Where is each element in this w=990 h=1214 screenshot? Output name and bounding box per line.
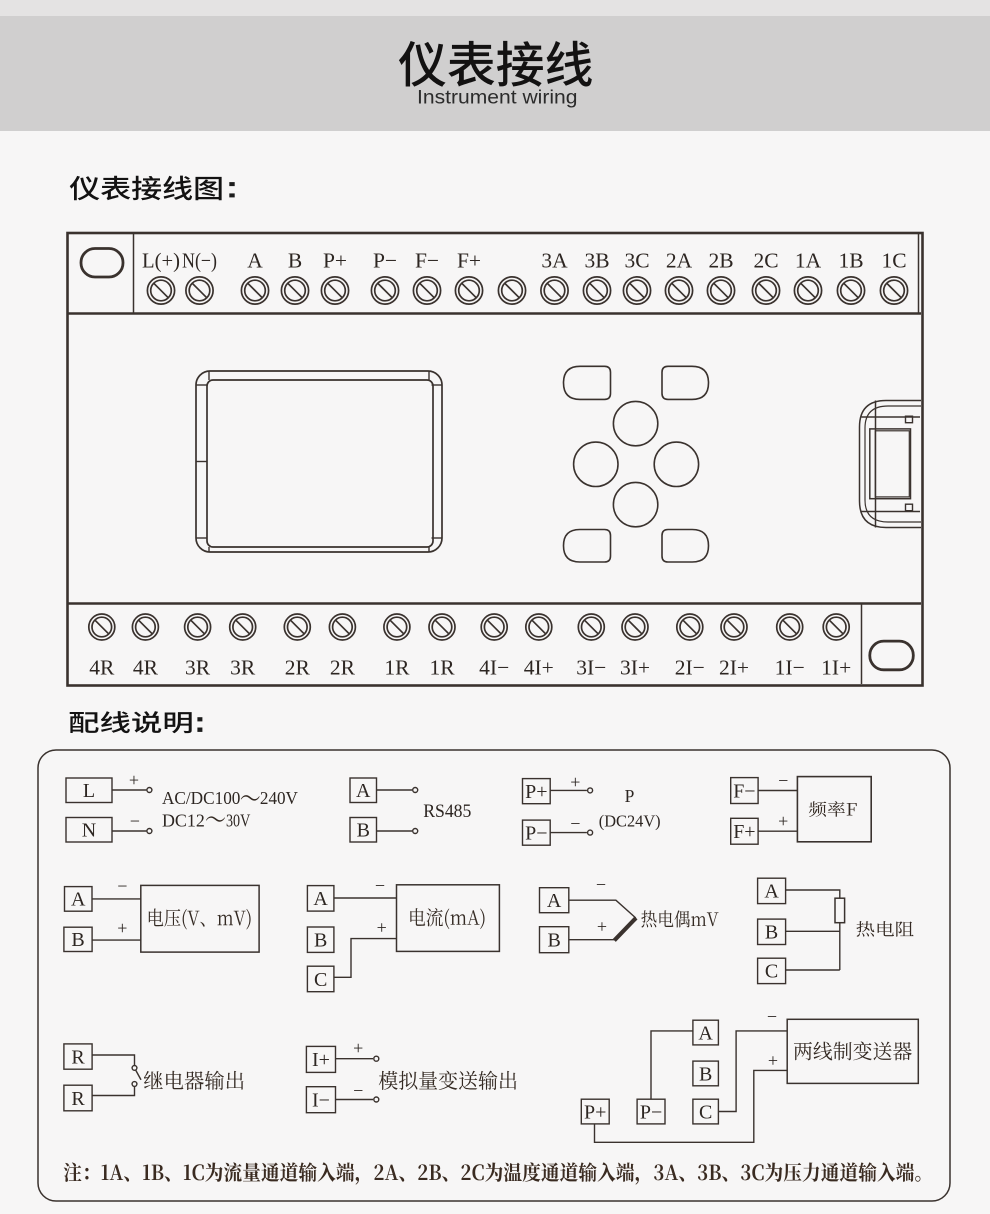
svg-text:N(−): N(−) [182, 249, 217, 273]
svg-text:A: A [247, 249, 263, 273]
svg-text:P+: P+ [584, 1101, 606, 1123]
svg-text:+: + [117, 918, 127, 938]
svg-text:P−: P− [373, 249, 397, 273]
svg-text:3A: 3A [541, 249, 568, 273]
svg-text:1I+: 1I+ [821, 656, 851, 680]
svg-text:4I−: 4I− [479, 656, 509, 680]
svg-text:B: B [288, 249, 302, 273]
svg-text:A: A [547, 890, 562, 912]
svg-text:B: B [699, 1063, 712, 1085]
svg-text:4I+: 4I+ [524, 656, 554, 680]
svg-text:C: C [699, 1101, 712, 1123]
svg-text:−: − [375, 876, 385, 896]
svg-text:P−: P− [525, 822, 547, 844]
svg-text:3B: 3B [584, 249, 609, 273]
svg-text:+: + [377, 918, 387, 938]
svg-text:2C: 2C [753, 249, 778, 273]
svg-text:C: C [765, 961, 778, 983]
svg-text:I−: I− [312, 1090, 330, 1112]
svg-text:+: + [768, 1050, 778, 1070]
svg-text:Instrument wiring: Instrument wiring [417, 86, 578, 108]
svg-text:−: − [117, 876, 127, 896]
svg-text:2A: 2A [666, 249, 693, 273]
svg-text:2R: 2R [330, 656, 356, 680]
svg-text:1R: 1R [384, 656, 410, 680]
svg-text:B: B [765, 922, 778, 944]
svg-text:2B: 2B [708, 249, 733, 273]
svg-text:240V: 240V [260, 788, 298, 808]
svg-text:I+: I+ [312, 1049, 330, 1071]
svg-text:+: + [597, 917, 607, 937]
svg-text:2R: 2R [285, 656, 311, 680]
svg-text:+: + [129, 770, 139, 790]
svg-text:1C: 1C [881, 249, 906, 273]
svg-text:A: A [764, 881, 779, 903]
svg-text:R: R [71, 1088, 85, 1110]
svg-text:B: B [314, 930, 327, 952]
svg-text:F+: F+ [457, 249, 481, 273]
svg-text:DC12: DC12 [162, 811, 205, 831]
svg-text:P: P [625, 786, 635, 806]
svg-text:AC/DC100: AC/DC100 [162, 788, 240, 808]
svg-text:A: A [313, 888, 328, 910]
svg-text:4R: 4R [89, 656, 115, 680]
svg-text:3I−: 3I− [576, 656, 606, 680]
svg-text:1A: 1A [795, 249, 822, 273]
svg-text:A: A [71, 889, 86, 911]
svg-text:A: A [698, 1022, 713, 1044]
svg-text:P+: P+ [323, 249, 347, 273]
svg-text:1I−: 1I− [775, 656, 805, 680]
svg-text:B: B [547, 930, 560, 952]
svg-text:F−: F− [415, 249, 439, 273]
svg-text:−: − [353, 1080, 363, 1100]
svg-text:N: N [82, 820, 96, 842]
svg-text:RS485: RS485 [423, 802, 471, 822]
svg-text:C: C [314, 969, 327, 991]
svg-text:3R: 3R [230, 656, 256, 680]
svg-text:R: R [71, 1046, 85, 1068]
svg-text:B: B [71, 929, 84, 951]
svg-text:A: A [356, 780, 371, 802]
svg-text:2I−: 2I− [675, 656, 705, 680]
svg-text:F+: F+ [733, 821, 755, 843]
svg-text:+: + [570, 772, 580, 792]
svg-text:P−: P− [640, 1101, 662, 1123]
svg-text:4R: 4R [133, 656, 159, 680]
svg-text:3I+: 3I+ [620, 656, 650, 680]
svg-text:1B: 1B [838, 249, 863, 273]
svg-text:−: − [596, 875, 606, 895]
svg-text:2I+: 2I+ [719, 656, 749, 680]
svg-text:3C: 3C [624, 249, 649, 273]
svg-text:−: − [570, 813, 580, 833]
svg-text:+: + [353, 1038, 363, 1058]
svg-text:P+: P+ [525, 781, 547, 803]
svg-text:30V: 30V [226, 811, 250, 831]
svg-text:+: + [778, 811, 788, 831]
svg-text:F−: F− [733, 780, 755, 802]
svg-text:L(+): L(+) [142, 249, 180, 273]
svg-text:−: − [130, 811, 140, 831]
svg-text:−: − [778, 771, 788, 791]
svg-text:1R: 1R [429, 656, 455, 680]
svg-text:−: − [767, 1006, 777, 1026]
svg-text:L: L [83, 780, 95, 802]
svg-text:B: B [357, 820, 370, 842]
svg-text:(DC24V): (DC24V) [599, 812, 661, 831]
svg-text:3R: 3R [185, 656, 211, 680]
